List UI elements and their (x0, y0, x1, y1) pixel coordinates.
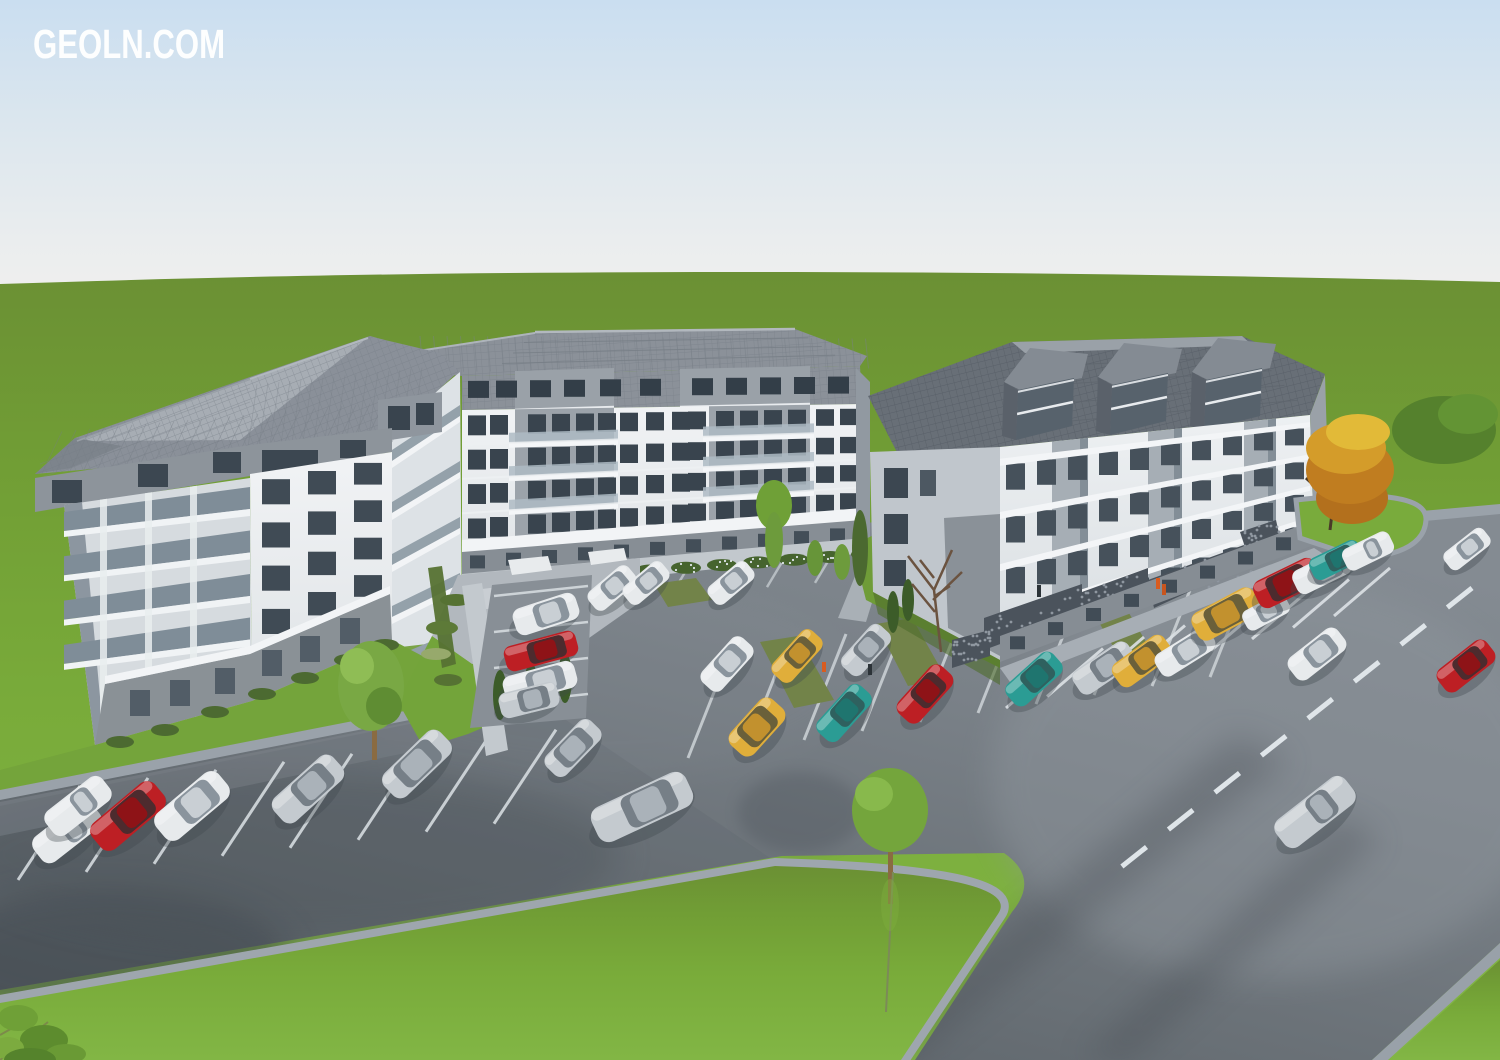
svg-text:GEOLN.COM: GEOLN.COM (33, 21, 225, 67)
